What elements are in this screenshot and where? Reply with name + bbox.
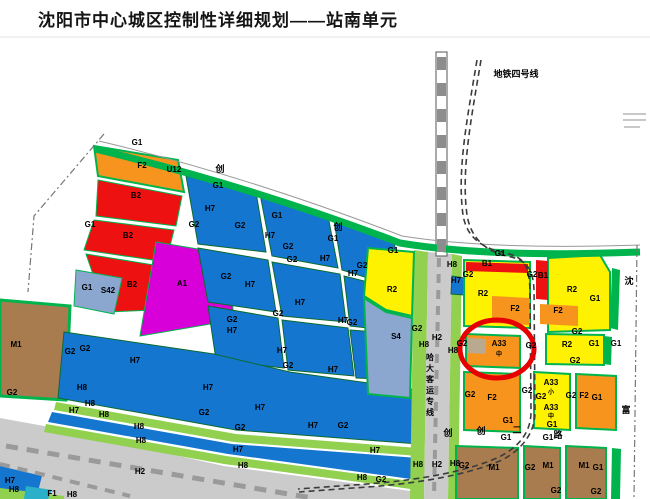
map-label: H7 bbox=[265, 231, 276, 240]
map-label: A33 bbox=[544, 403, 559, 412]
map-label: G2 bbox=[347, 318, 358, 327]
map-label: F1 bbox=[47, 489, 57, 498]
map-label: H8 bbox=[238, 461, 249, 470]
map-label: F2 bbox=[510, 304, 520, 313]
map-label: M1 bbox=[488, 463, 500, 472]
map-label: B2 bbox=[127, 280, 138, 289]
map-label: H7 bbox=[5, 476, 16, 485]
map-label: 创 bbox=[214, 163, 224, 174]
map-label: A33 bbox=[544, 378, 559, 387]
map-label: H7 bbox=[233, 445, 244, 454]
map-label: H7 bbox=[203, 383, 214, 392]
map-label: 客 bbox=[425, 374, 435, 384]
map-label: G2 bbox=[273, 309, 284, 318]
map-label: H2 bbox=[432, 460, 443, 469]
map-label: 创 bbox=[475, 425, 485, 436]
map-label: G2 bbox=[551, 486, 562, 495]
map-label: H7 bbox=[130, 356, 141, 365]
map-label: R2 bbox=[567, 285, 578, 294]
map-label: G2 bbox=[199, 408, 210, 417]
map-label: G1 bbox=[547, 420, 558, 429]
map-label: H7 bbox=[255, 403, 266, 412]
map-label: G1 bbox=[501, 433, 512, 442]
map-label: 中 bbox=[548, 412, 554, 420]
map-label: H8 bbox=[77, 383, 88, 392]
map-label: H8 bbox=[85, 399, 96, 408]
map-label: S4 bbox=[391, 332, 401, 341]
map-label: G1 bbox=[590, 294, 601, 303]
map-label: S42 bbox=[101, 286, 116, 295]
map-label: H7 bbox=[320, 254, 331, 263]
map-label: G2 bbox=[235, 423, 246, 432]
map-label: H7 bbox=[245, 280, 256, 289]
map-label: G1 bbox=[388, 246, 399, 255]
map-label: 路 bbox=[553, 429, 563, 440]
map-label: H8 bbox=[413, 460, 424, 469]
map-label: 创 bbox=[442, 427, 452, 438]
map-label: G1 bbox=[272, 211, 283, 220]
map-label: 小 bbox=[547, 388, 554, 396]
map-label: H7 bbox=[295, 298, 306, 307]
map-label: 二 bbox=[512, 425, 521, 435]
map-label: F2 bbox=[553, 306, 563, 315]
map-label: G2 bbox=[189, 220, 200, 229]
parcel-f2-east bbox=[576, 374, 616, 430]
page-title: 沈阳市中心城区控制性详细规划——站南单元 bbox=[38, 6, 398, 31]
map-label: G2 bbox=[357, 261, 368, 270]
parcel-m1-a bbox=[456, 446, 518, 499]
map-label: G2 bbox=[283, 242, 294, 251]
parcel-b1-vert bbox=[536, 260, 548, 300]
map-label: G1 bbox=[592, 393, 603, 402]
map-label: G1 bbox=[213, 181, 224, 190]
map-label: F2 bbox=[137, 161, 147, 170]
map-label: M1 bbox=[10, 340, 22, 349]
map-label: G2 bbox=[536, 392, 547, 401]
map-label: G1 bbox=[543, 433, 554, 442]
map-label: G2 bbox=[522, 386, 533, 395]
map-label: G2 bbox=[457, 339, 468, 348]
map-label: G2 bbox=[338, 421, 349, 430]
planning-map: G1G1G1G1G1G1创创地铁四号线F2U12B2B2B2G1G1S42A1M… bbox=[0, 0, 650, 499]
map-label: H8 bbox=[447, 260, 458, 269]
map-label: M1 bbox=[542, 461, 554, 470]
parcel-h7 bbox=[198, 248, 276, 312]
map-label: G2 bbox=[526, 341, 537, 350]
map-label: H8 bbox=[136, 436, 147, 445]
boundary-right-dashed bbox=[634, 245, 637, 499]
map-label: H8 bbox=[67, 490, 78, 499]
map-label: B1 bbox=[538, 271, 549, 280]
map-label: G1 bbox=[589, 339, 600, 348]
map-label: H7 bbox=[451, 276, 462, 285]
map-label: H8 bbox=[419, 340, 430, 349]
map-label: H8 bbox=[9, 485, 20, 494]
map-label: G1 bbox=[611, 339, 622, 348]
map-label: H8 bbox=[99, 410, 110, 419]
map-label: F2 bbox=[579, 391, 589, 400]
map-label: 创 bbox=[332, 221, 342, 232]
map-label: G2 bbox=[287, 255, 298, 264]
map-label: B2 bbox=[131, 191, 142, 200]
map-label: 线 bbox=[426, 407, 434, 417]
map-label: G1 bbox=[495, 249, 506, 258]
map-label: G2 bbox=[591, 487, 602, 496]
map-label: G2 bbox=[572, 327, 583, 336]
map-label: H7 bbox=[277, 346, 288, 355]
map-label: G2 bbox=[221, 272, 232, 281]
map-label: G1 bbox=[82, 283, 93, 292]
map-label: H8 bbox=[357, 473, 368, 482]
map-label: G2 bbox=[463, 270, 474, 279]
map-label: 沈 bbox=[624, 275, 633, 286]
map-label: R2 bbox=[387, 285, 398, 294]
map-label: G1 bbox=[593, 463, 604, 472]
map-label: G2 bbox=[570, 356, 581, 365]
map-label: G2 bbox=[527, 270, 538, 279]
strip-g1-right bbox=[610, 268, 620, 330]
map-label: B1 bbox=[482, 259, 493, 268]
map-label: 富 bbox=[621, 404, 630, 415]
map-label: G2 bbox=[525, 463, 536, 472]
map-label: G1 bbox=[328, 234, 339, 243]
map-label: 运 bbox=[426, 386, 434, 395]
map-label: G1 bbox=[85, 220, 96, 229]
map-label: H7 bbox=[328, 365, 339, 374]
map-label: U12 bbox=[167, 165, 182, 174]
map-label: G2 bbox=[566, 391, 577, 400]
map-label: G2 bbox=[235, 221, 246, 230]
map-label: G2 bbox=[465, 390, 476, 399]
map-label: G2 bbox=[80, 344, 91, 353]
map-label: G2 bbox=[7, 388, 18, 397]
map-label: G2 bbox=[227, 315, 238, 324]
map-label: 大 bbox=[426, 363, 434, 373]
map-label: H2 bbox=[432, 333, 443, 342]
map-label: G2 bbox=[459, 461, 470, 470]
map-label: M1 bbox=[578, 461, 590, 470]
map-label: R2 bbox=[562, 340, 573, 349]
map-label: 哈 bbox=[426, 352, 434, 362]
map-label: H7 bbox=[205, 204, 216, 213]
map-label: G2 bbox=[65, 347, 76, 356]
map-label: 地铁四号线 bbox=[493, 68, 538, 79]
map-label: G2 bbox=[283, 361, 294, 370]
map-label: G2 bbox=[376, 475, 387, 484]
map-label: H7 bbox=[227, 326, 238, 335]
strip-g1-right bbox=[611, 448, 621, 499]
map-label: A33 bbox=[492, 339, 507, 348]
map-label: G1 bbox=[503, 416, 514, 425]
map-label: A1 bbox=[177, 279, 188, 288]
map-label: B2 bbox=[123, 231, 134, 240]
map-label: 中 bbox=[496, 350, 502, 358]
map-label: G2 bbox=[412, 324, 423, 333]
map-label: F2 bbox=[487, 393, 497, 402]
map-label: H7 bbox=[308, 421, 319, 430]
map-label: H8 bbox=[134, 422, 145, 431]
map-label: R2 bbox=[478, 289, 489, 298]
map-label: G1 bbox=[132, 138, 143, 147]
map-label: H2 bbox=[135, 467, 146, 476]
map-label: H7 bbox=[348, 269, 359, 278]
a33-inner-square bbox=[468, 338, 486, 354]
map-label: H7 bbox=[69, 406, 80, 415]
map-label: H7 bbox=[370, 446, 381, 455]
map-label: 专 bbox=[426, 396, 434, 406]
